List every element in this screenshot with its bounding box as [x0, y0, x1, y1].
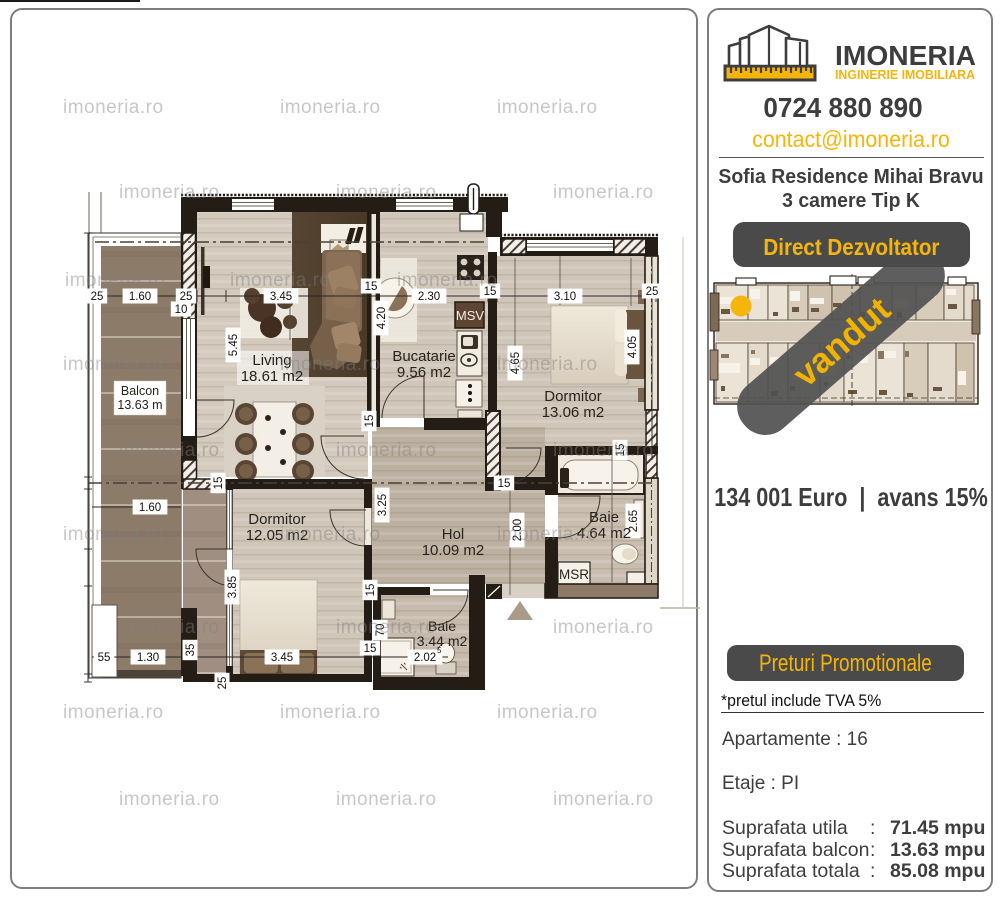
svg-text:imoneria.ro: imoneria.ro: [119, 789, 220, 810]
svg-text:15: 15: [364, 415, 376, 428]
svg-text:3.45: 3.45: [271, 652, 293, 664]
svg-text:imoneria.ro: imoneria.ro: [336, 617, 437, 638]
svg-text:imoneria.ro: imoneria.ro: [553, 789, 654, 810]
svg-text:3.25: 3.25: [377, 494, 389, 516]
svg-text:imoneria.ro: imoneria.ro: [336, 182, 437, 203]
svg-text:imoneria.ro: imoneria.ro: [119, 617, 220, 638]
svg-text:imoneria.ro: imoneria.ro: [336, 440, 437, 461]
svg-text:imoneria.ro: imoneria.ro: [63, 524, 164, 545]
svg-text:3.85: 3.85: [227, 576, 239, 598]
svg-text:imoneria.ro: imoneria.ro: [336, 789, 437, 810]
svg-text:imoneria.ro: imoneria.ro: [497, 702, 598, 723]
svg-text:35: 35: [185, 644, 197, 657]
svg-text:25: 25: [91, 291, 104, 303]
svg-text:imoneria.ro: imoneria.ro: [63, 97, 164, 118]
svg-text:imoneria.ro: imoneria.ro: [553, 182, 654, 203]
svg-text:INGINERIE IMOBILIARA: INGINERIE IMOBILIARA: [835, 67, 976, 82]
svg-text:imoneria.ro: imoneria.ro: [65, 270, 166, 291]
svg-text:15: 15: [364, 643, 377, 655]
svg-text:imoneria.ro: imoneria.ro: [497, 354, 598, 375]
svg-text:imoneria.ro: imoneria.ro: [280, 97, 381, 118]
svg-text:3.45: 3.45: [270, 291, 292, 303]
svg-text:imoneria.ro: imoneria.ro: [280, 702, 381, 723]
svg-text:imoneria.ro: imoneria.ro: [553, 440, 654, 461]
svg-text:25: 25: [180, 291, 193, 303]
svg-text:imoneria.ro: imoneria.ro: [63, 702, 164, 723]
svg-text:15: 15: [498, 478, 511, 490]
svg-text:15: 15: [213, 477, 225, 490]
svg-text:Dormitor13.06 m2: Dormitor13.06 m2: [542, 388, 605, 421]
svg-text:imoneria.ro: imoneria.ro: [280, 354, 381, 375]
svg-text:1.60: 1.60: [129, 291, 151, 303]
svg-text:imoneria.ro: imoneria.ro: [280, 524, 381, 545]
svg-text:imoneria.ro: imoneria.ro: [497, 524, 598, 545]
svg-text:imoneria.ro: imoneria.ro: [497, 97, 598, 118]
svg-text:MSV: MSV: [456, 308, 485, 323]
svg-text:imoneria.ro: imoneria.ro: [553, 617, 654, 638]
svg-text:Bucatarie9.56 m2: Bucatarie9.56 m2: [392, 348, 455, 381]
svg-text:imoneria.ro: imoneria.ro: [119, 440, 220, 461]
svg-text:Balcon13.63 m: Balcon13.63 m: [117, 384, 162, 412]
svg-text:55: 55: [98, 652, 111, 664]
svg-text:1.60: 1.60: [139, 502, 161, 514]
svg-text:15: 15: [365, 584, 377, 597]
svg-text:25: 25: [217, 677, 229, 690]
svg-text:4.20: 4.20: [376, 307, 388, 329]
svg-text:imoneria.ro: imoneria.ro: [63, 354, 164, 375]
svg-text:imoneria.ro: imoneria.ro: [397, 270, 498, 291]
svg-text:25: 25: [646, 286, 659, 298]
svg-text:10: 10: [175, 304, 188, 316]
svg-text:imoneria.ro: imoneria.ro: [230, 270, 331, 291]
svg-text:4.05: 4.05: [627, 336, 639, 358]
svg-text:2.02: 2.02: [414, 652, 436, 664]
svg-text:MSR: MSR: [559, 567, 589, 582]
svg-text:1.30: 1.30: [137, 652, 159, 664]
svg-text:2.30: 2.30: [418, 291, 440, 303]
svg-text:3.10: 3.10: [554, 291, 576, 303]
svg-text:imoneria.ro: imoneria.ro: [119, 182, 220, 203]
svg-text:15: 15: [365, 281, 378, 293]
